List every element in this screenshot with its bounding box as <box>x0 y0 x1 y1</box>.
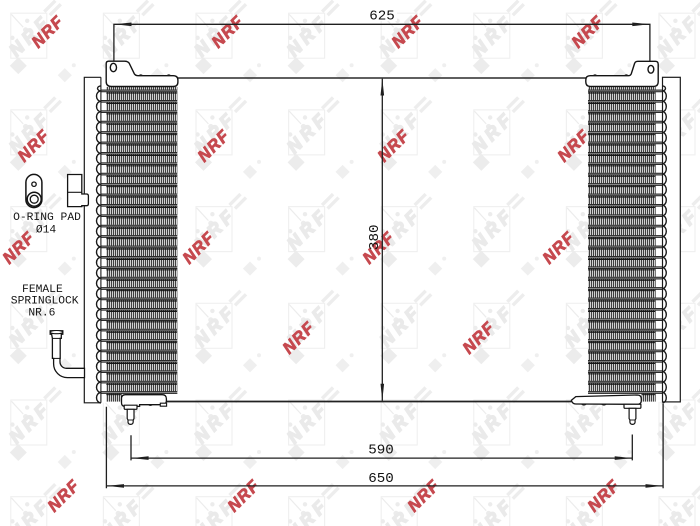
svg-text:NR.6: NR.6 <box>28 308 55 320</box>
svg-text:O-RING PAD: O-RING PAD <box>13 212 81 224</box>
svg-text:380: 380 <box>367 225 383 251</box>
svg-text:590: 590 <box>368 442 394 458</box>
svg-text:Ø14: Ø14 <box>36 224 57 236</box>
svg-text:625: 625 <box>369 9 395 25</box>
svg-text:FEMALE: FEMALE <box>22 284 63 296</box>
svg-text:SPRINGLOCK: SPRINGLOCK <box>11 296 79 308</box>
svg-text:650: 650 <box>368 471 394 487</box>
